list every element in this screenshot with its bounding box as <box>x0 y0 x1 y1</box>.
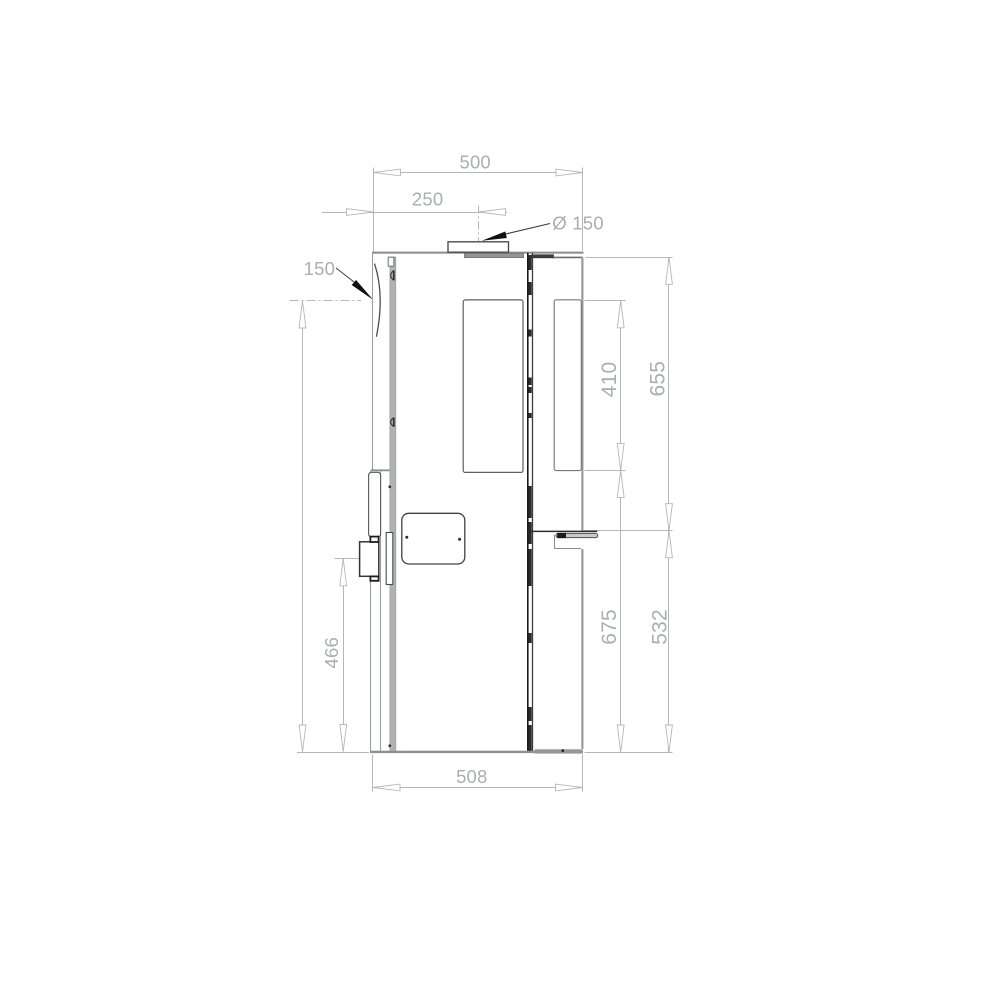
svg-text:Ø 150: Ø 150 <box>552 212 603 233</box>
svg-text:655: 655 <box>646 361 669 397</box>
svg-text:508: 508 <box>456 766 487 787</box>
svg-text:500: 500 <box>459 152 490 173</box>
svg-text:675: 675 <box>598 609 621 645</box>
svg-text:532: 532 <box>649 609 672 645</box>
svg-text:150: 150 <box>304 258 335 279</box>
svg-text:410: 410 <box>598 362 621 398</box>
svg-text:250: 250 <box>412 188 443 209</box>
svg-text:466: 466 <box>321 637 342 668</box>
